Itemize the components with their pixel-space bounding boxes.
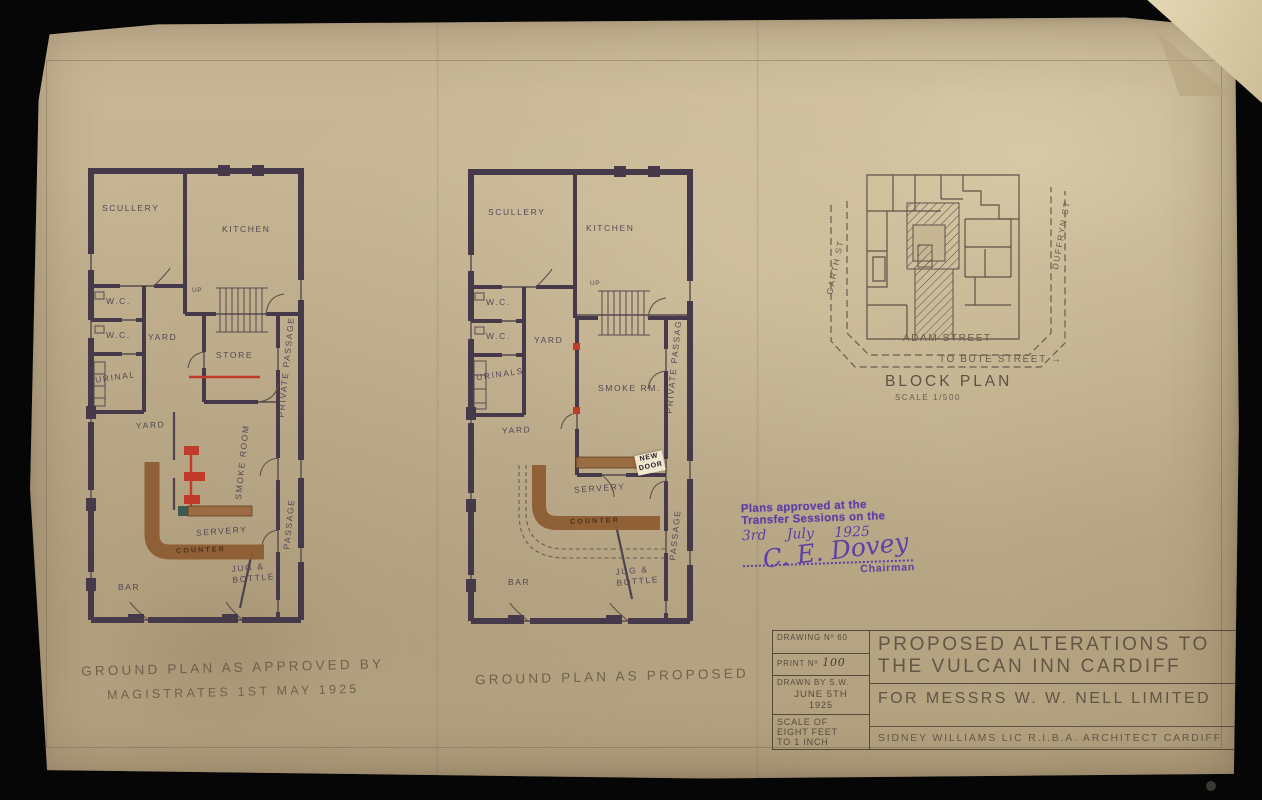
photo-background: SCULLERY KITCHEN UP W.C. W.C. URINAL YAR… [0, 0, 1262, 800]
drawing-sheet: SCULLERY KITCHEN UP W.C. W.C. URINAL YAR… [24, 16, 1240, 780]
print-number-value: 100 [822, 656, 845, 669]
room-label-yard-lower: YARD [502, 424, 532, 436]
room-label-wc-upper: W.C. [486, 297, 511, 307]
title-block-main: PROPOSED ALTERATIONS TO THE VULCAN INN C… [870, 631, 1247, 749]
room-label-wc-lower: W.C. [106, 330, 131, 340]
proposed-plan: SCULLERY KITCHEN UP W.C. W.C. URINALS YA… [462, 163, 702, 633]
bar-counter [152, 462, 264, 552]
room-label-smoke-room: SMOKE RM. [598, 383, 661, 393]
drawing-number: DRAWING Nº 60 [773, 631, 869, 654]
street-label-adam: ADAM STREET [903, 333, 992, 344]
architect-line: SIDNEY WILLIAMS LIC R.I.B.A. ARCHITECT C… [870, 727, 1247, 749]
room-label-yard-upper: YARD [148, 332, 177, 342]
block-plan-title: BLOCK PLAN [885, 373, 1012, 391]
staircase [216, 288, 268, 332]
room-label-wc-lower: W.C. [486, 331, 511, 341]
approval-stamp: Plans approved at the Transfer Sessions … [741, 497, 930, 579]
title-block: DRAWING Nº 60 PRINT Nº100 DRAWN BY S.W. … [772, 630, 1248, 750]
inner-walls [471, 172, 690, 621]
room-label-store: STORE [216, 350, 253, 360]
room-label-kitchen: KITCHEN [586, 223, 635, 233]
chimney-and-piers [466, 166, 660, 624]
drawing-title: PROPOSED ALTERATIONS TO THE VULCAN INN C… [870, 631, 1247, 684]
print-number: PRINT Nº100 [773, 654, 869, 675]
vulcan-site-hatched-lower [915, 269, 953, 339]
room-label-bar: BAR [118, 582, 140, 592]
outer-walls [468, 169, 693, 621]
approved-plan: SCULLERY KITCHEN UP W.C. W.C. URINAL YAR… [82, 162, 308, 629]
drawn-by-and-date: DRAWN BY S.W. JUNE 5TH 1925 [773, 676, 869, 716]
staircase [598, 291, 650, 335]
title-block-info-column: DRAWING Nº 60 PRINT Nº100 DRAWN BY S.W. … [773, 631, 870, 749]
block-plan-drawing [815, 155, 1100, 405]
block-plan: ADAM STREET TO BUTE STREET → BLOCK PLAN … [815, 155, 1100, 405]
room-label-jug-and-bottle: JUG & BOTTLE [231, 560, 276, 587]
room-label-scullery: SCULLERY [102, 203, 160, 213]
room-label-yard-lower: YARD [136, 419, 166, 431]
proposed-plan-caption: GROUND PLAN AS PROPOSED [472, 661, 753, 693]
block-plan-scale: SCALE 1/500 [895, 393, 961, 402]
stair-up-label: UP [590, 280, 600, 287]
direction-note-bute-street: TO BUTE STREET → [939, 354, 1063, 365]
thin-wall-outline [471, 172, 690, 621]
approved-plan-walls [82, 162, 308, 629]
room-label-kitchen: KITCHEN [222, 224, 271, 234]
scale-note: SCALE OF EIGHT FEET TO 1 INCH [773, 715, 869, 749]
room-label-wc-upper: W.C. [106, 296, 131, 306]
room-label-yard-upper: YARD [534, 335, 563, 345]
reference-dot [1206, 781, 1216, 791]
courtyard-structure [918, 245, 932, 267]
wc-fixtures [94, 292, 105, 406]
approved-plan-caption: GROUND PLAN AS APPROVED BY MAGISTRATES 1… [67, 651, 398, 708]
fold-crease [436, 16, 439, 780]
room-label-scullery: SCULLERY [488, 207, 546, 217]
fold-crease [756, 16, 759, 780]
stair-up-label: UP [192, 287, 202, 294]
room-label-bar: BAR [508, 577, 530, 587]
wc-fixtures [474, 293, 486, 409]
room-label-jug-and-bottle: JUG & BOTTLE [615, 563, 660, 590]
client-line: FOR MESSRS W. W. NELL LIMITED [870, 684, 1247, 727]
